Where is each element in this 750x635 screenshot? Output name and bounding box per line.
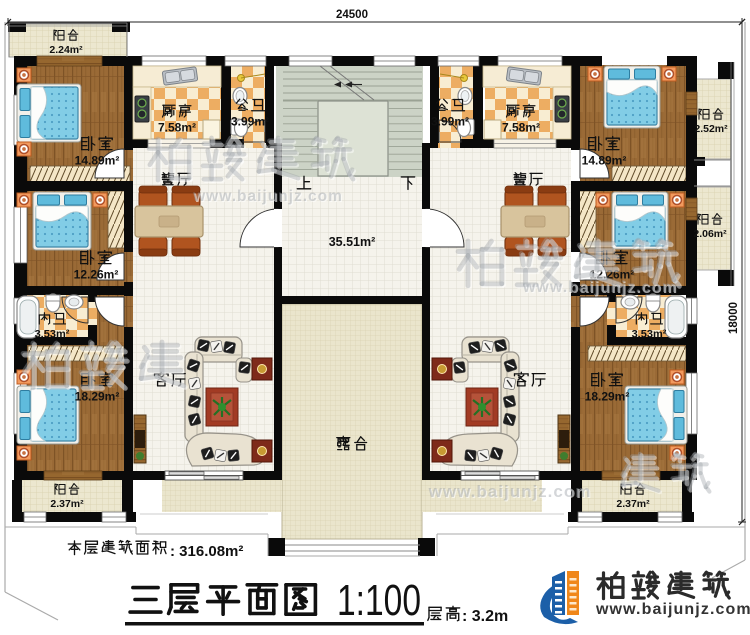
- svg-text:: 3.2m: : 3.2m: [462, 608, 508, 625]
- svg-text:7.58m²: 7.58m²: [158, 121, 196, 135]
- svg-text:2.24m²: 2.24m²: [49, 44, 83, 56]
- svg-text:www.baijunjz.com: www.baijunjz.com: [595, 601, 750, 618]
- svg-text:2.06m²: 2.06m²: [693, 228, 727, 240]
- svg-text:18000: 18000: [728, 302, 740, 334]
- svg-text:: 316.08m²: : 316.08m²: [170, 543, 243, 560]
- svg-text:18.29m²: 18.29m²: [75, 390, 120, 404]
- svg-text:3.53m²: 3.53m²: [632, 329, 667, 341]
- svg-text:14.89m²: 14.89m²: [75, 154, 120, 168]
- svg-text:7.58m²: 7.58m²: [502, 121, 540, 135]
- svg-text:12.26m²: 12.26m²: [74, 268, 119, 282]
- svg-text:www.baijunjz.com: www.baijunjz.com: [428, 482, 592, 501]
- svg-text:35.51m²: 35.51m²: [329, 235, 376, 249]
- svg-text:2.37m²: 2.37m²: [50, 498, 84, 510]
- svg-text:3.99m²: 3.99m²: [431, 115, 469, 129]
- svg-text:18.29m²: 18.29m²: [585, 390, 630, 404]
- svg-text:24500: 24500: [336, 9, 368, 21]
- svg-text:www.baijunjz.com: www.baijunjz.com: [522, 279, 677, 296]
- svg-text:www.baijunjz.com: www.baijunjz.com: [192, 188, 343, 205]
- svg-text:3.99m²: 3.99m²: [231, 115, 269, 129]
- svg-text:3.53m²: 3.53m²: [35, 329, 70, 341]
- svg-text:1:100: 1:100: [337, 576, 421, 625]
- svg-text:2.52m²: 2.52m²: [694, 123, 728, 135]
- svg-text:14.89m²: 14.89m²: [582, 154, 627, 168]
- svg-text:2.37m²: 2.37m²: [616, 498, 650, 510]
